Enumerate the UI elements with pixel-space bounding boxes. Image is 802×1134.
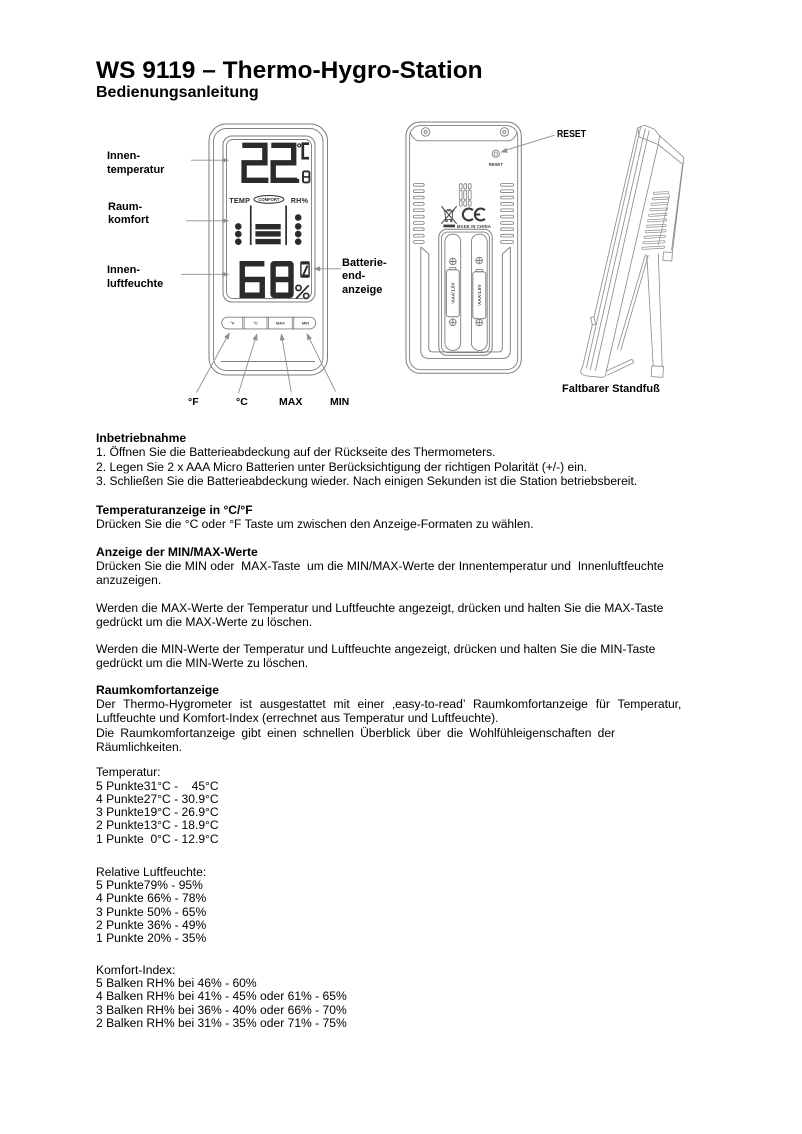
svg-text:TEMP: TEMP [229, 196, 250, 205]
svg-text:°C: °C [253, 321, 258, 326]
svg-text:°F: °F [230, 321, 235, 326]
svg-text:MAX: MAX [276, 321, 285, 326]
svg-text:MIN: MIN [302, 321, 309, 326]
svg-text:MADE IN CHINA: MADE IN CHINA [457, 224, 491, 229]
svg-text:‘AAA’1.5V: ‘AAA’1.5V [477, 284, 482, 307]
svg-text:COMFORT: COMFORT [258, 197, 280, 202]
svg-text:RESET: RESET [489, 162, 503, 167]
svg-text:RH%: RH% [291, 196, 309, 205]
svg-text:‘AAA’1.5V: ‘AAA’1.5V [451, 282, 456, 305]
